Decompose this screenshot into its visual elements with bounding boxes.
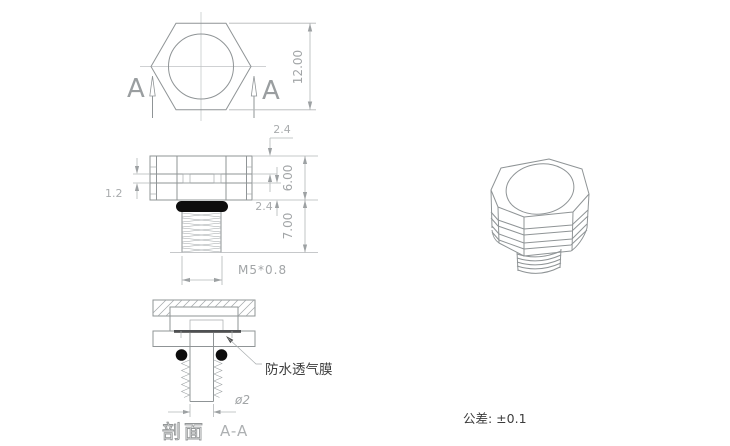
tolerance-note: 公差: ±0.1 [463,411,527,426]
dim-6-00-text: 6.00 [281,165,295,192]
iso-top-ellipse [503,160,577,219]
thread-spec-text: M5*0.8 [238,263,287,277]
front-view: M5*0.8 2.4 2.4 6.00 [105,123,318,285]
section-cap [146,296,266,331]
dim-2-4-top-text: 2.4 [273,123,291,136]
section-cut-arrow-right [251,76,256,118]
section-label-right: A [262,76,280,106]
section-caption-id: A-A [220,422,248,440]
section-thread [182,333,223,402]
section-flange [153,331,255,347]
dim-6-00: 6.00 [252,156,318,200]
front-head [150,156,252,200]
membrane-leader: 防水透气膜 [226,336,333,378]
dim-7-00: 7.00 [281,200,307,253]
isometric-view [491,159,589,273]
o-ring-section-left [176,349,188,361]
dim-7-00-text: 7.00 [281,213,295,240]
dim-bore-text: ø2 [234,393,250,407]
dim-1-2-text: 1.2 [105,187,123,200]
membrane-label: 防水透气膜 [265,362,333,378]
dim-2-4-bottom-text: 2.4 [255,200,273,213]
dim-thread-spec: M5*0.8 [182,256,287,285]
engineering-drawing-canvas: A A 12.00 [0,0,730,446]
section-cut-arrow-left [150,76,155,118]
o-ring-section-right [216,349,228,361]
top-view-centerlines [140,12,266,121]
section-view: 防水透气膜 ø2 剖面 A-A [146,296,333,443]
thread-mesh [182,213,221,252]
vent-plug-drawing: A A 12.00 [0,0,730,446]
dim-12-00-text: 12.00 [291,50,305,84]
dim-1-2: 1.2 [105,158,150,200]
dim-bore: ø2 [168,393,250,417]
section-caption: 剖面 [162,421,206,443]
section-label-left: A [127,74,145,104]
front-thread [170,212,318,253]
o-ring-side [176,201,228,212]
top-view: A A 12.00 [127,12,316,121]
